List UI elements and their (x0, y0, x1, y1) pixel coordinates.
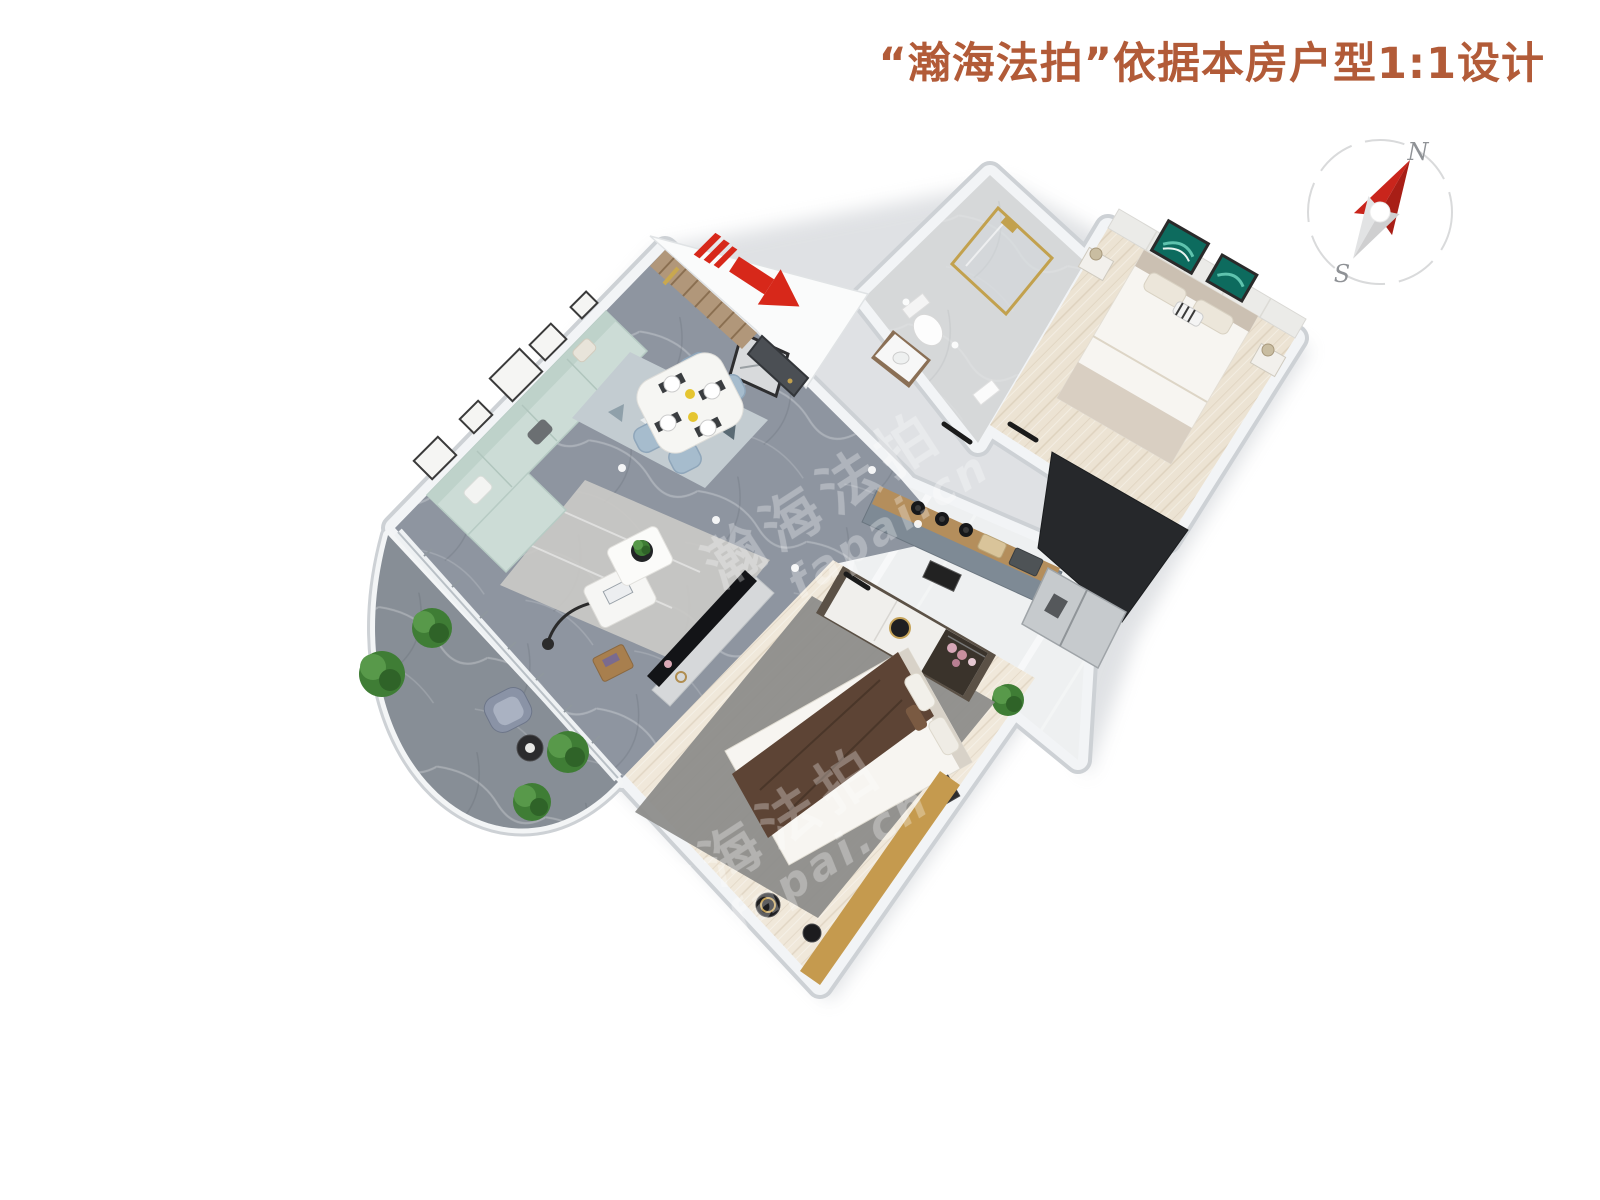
potted-plant-icon (992, 684, 1024, 716)
black-stool (803, 924, 821, 942)
potted-plant-icon (412, 608, 452, 648)
compass-south-label: S (1334, 260, 1350, 288)
page-title: “瀚海法拍”依据本房户型1:1设计 (878, 39, 1545, 89)
potted-plant-icon (547, 731, 589, 773)
compass-north-label: N (1407, 138, 1430, 166)
balcony-side-table (517, 735, 543, 761)
door-handle (788, 379, 793, 384)
potted-plant-icon (513, 783, 551, 821)
bedside-lamp (1090, 248, 1102, 260)
potted-plant-icon (359, 651, 405, 697)
floorplan-page: 瀚海法拍 fapai.cn 瀚海法拍 fapai.cn N S “瀚海 (0, 0, 1600, 1200)
compass: N S (1308, 138, 1452, 288)
floorplan-render: 瀚海法拍 fapai.cn 瀚海法拍 fapai.cn N S “瀚海 (0, 0, 1600, 1200)
bedside-lamp (1262, 344, 1274, 356)
flower-bouquet (685, 389, 695, 399)
compass-needle-icon (1334, 149, 1429, 270)
round-nightstand (890, 618, 910, 638)
flower-vase (664, 660, 672, 668)
flower-bouquet (688, 412, 698, 422)
